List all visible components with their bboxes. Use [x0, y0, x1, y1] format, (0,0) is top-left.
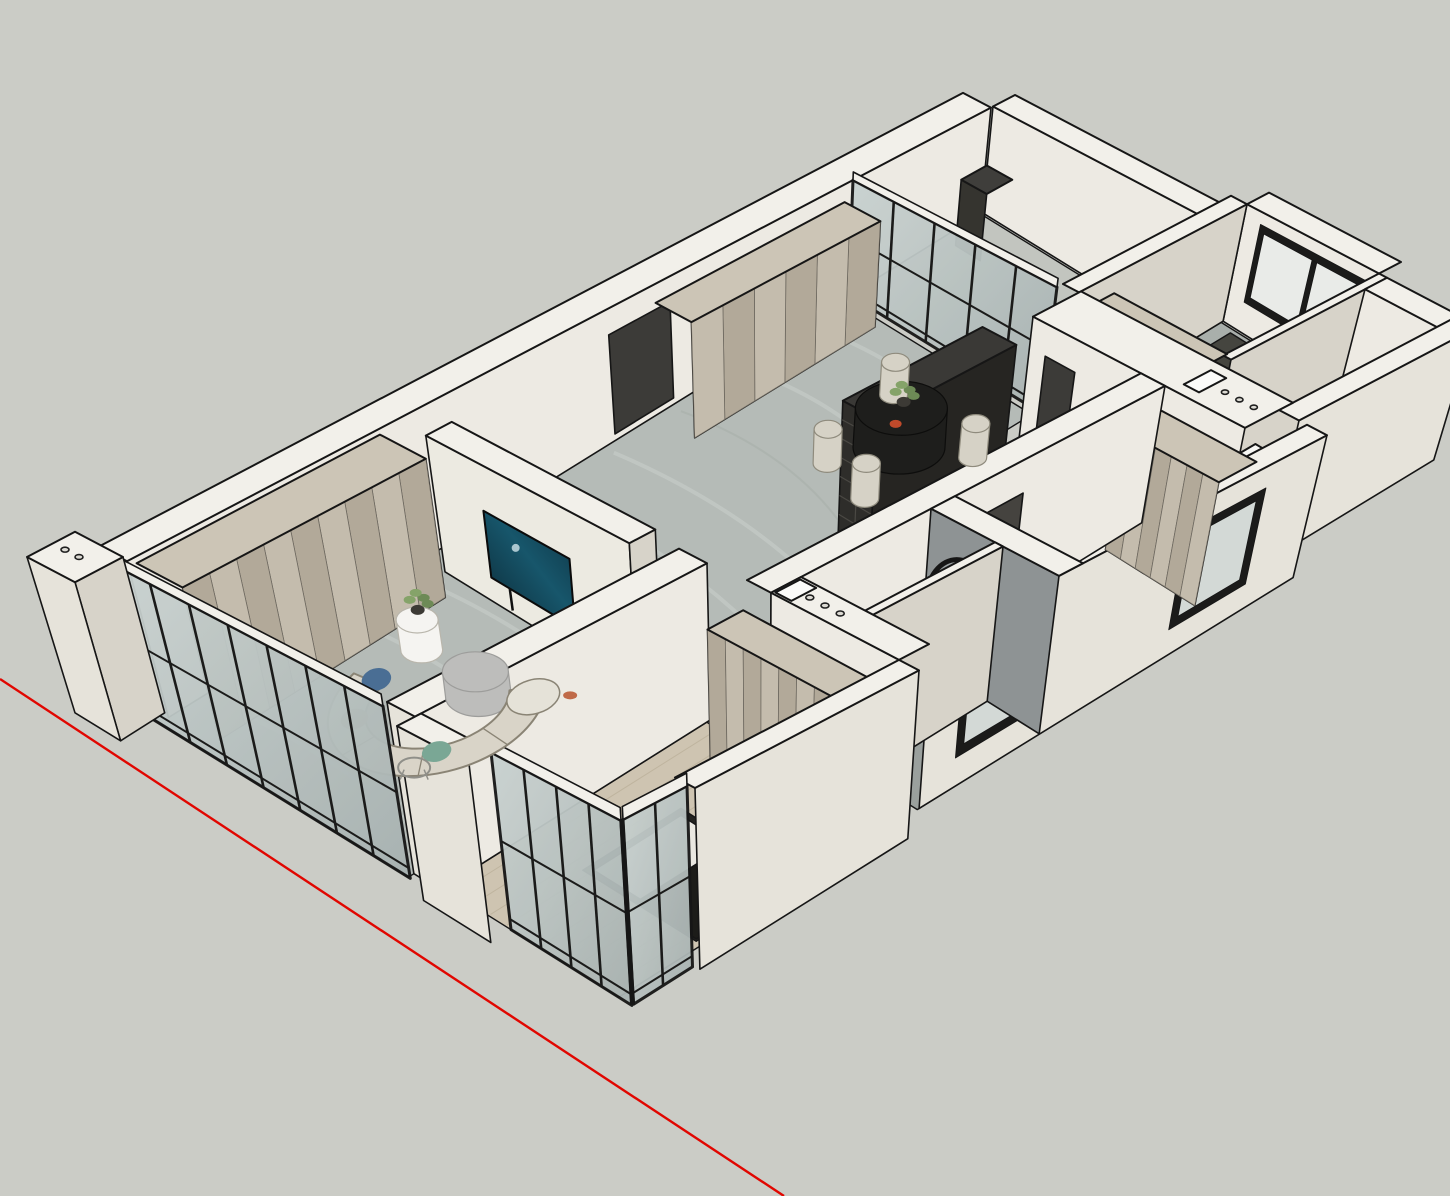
coffee-table-top: [442, 652, 508, 692]
spotlights-ensuite-spotlight: [1236, 397, 1243, 401]
dining-plant-leaves: [890, 388, 902, 396]
spotlights-ensuite-spotlight: [1221, 390, 1228, 394]
kitchen-cabinets-panel: [785, 255, 818, 383]
side-table-plant-leaves: [410, 589, 422, 597]
dining-plant-leaves: [908, 392, 920, 400]
side-table-plant-leaves: [422, 600, 434, 608]
dining-plant-leaves: [896, 381, 908, 389]
tv-screen-glare: [512, 544, 520, 552]
spotlights-bath-spotlight: [821, 603, 829, 608]
dining-chair-top: [814, 420, 842, 438]
kitchen-cabinets-panel: [723, 288, 755, 419]
slippers: [563, 691, 577, 699]
kitchen-cabinets-panel: [691, 305, 724, 438]
spotlights-bath-spotlight: [836, 611, 844, 616]
red-bowl: [890, 420, 902, 428]
dining-chair-top: [962, 415, 990, 433]
spotlights-ensuite-spotlight: [1250, 405, 1257, 409]
spotlights-west-tip-spotlight: [75, 555, 83, 560]
spotlights-west-tip-spotlight: [61, 547, 69, 552]
kitchen-cabinets-panel: [754, 272, 786, 401]
kitchen-cabinets-panel: [815, 238, 849, 364]
spotlights-bath-spotlight: [806, 595, 814, 600]
sketchup-3d-viewport[interactable]: [0, 0, 1450, 1196]
side-table-plant-leaves: [404, 596, 416, 604]
dining-chair-top: [852, 454, 880, 472]
kitchen-cabinets-panel: [845, 221, 880, 345]
dining-plant-pot: [897, 397, 911, 407]
dining-chair-top: [882, 353, 910, 371]
side-table-plant-pot: [411, 605, 425, 615]
